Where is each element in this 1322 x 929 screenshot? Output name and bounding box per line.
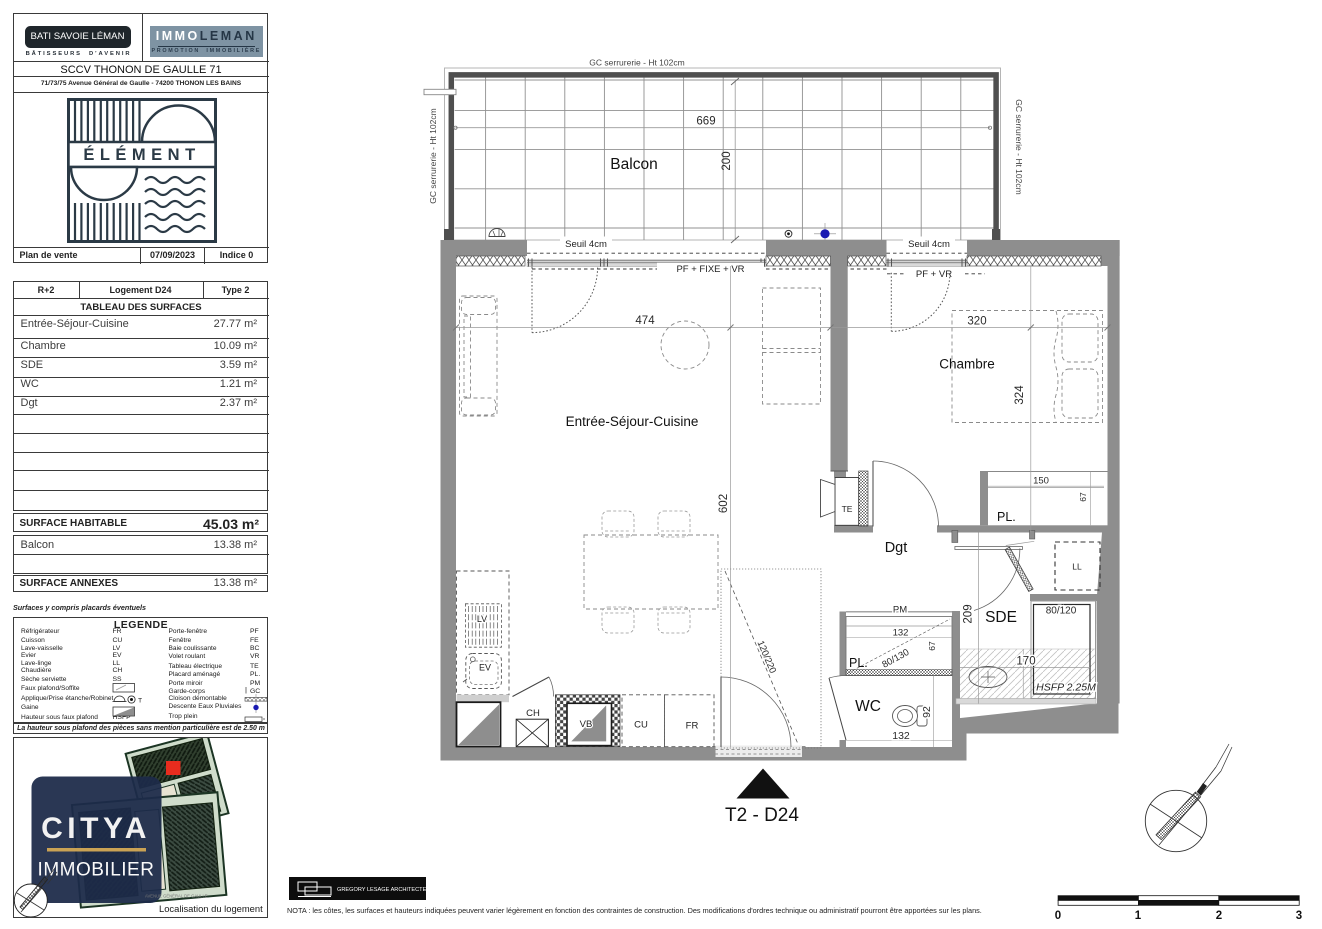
svg-text:PL.: PL. <box>849 656 868 670</box>
svg-text:LL: LL <box>1072 562 1082 572</box>
svg-text:EV: EV <box>479 663 491 673</box>
svg-text:GC serrurerie - Ht 102cm: GC serrurerie - Ht 102cm <box>428 108 438 203</box>
svg-text:3: 3 <box>1296 910 1302 922</box>
svg-text:132: 132 <box>893 628 909 639</box>
svg-text:209: 209 <box>963 604 975 623</box>
svg-text:120/220: 120/220 <box>755 639 779 675</box>
svg-text:AVENUE GÉNÉRAL DE GAULLE: AVENUE GÉNÉRAL DE GAULLE <box>145 894 208 899</box>
svg-text:PF + FIXE + VR: PF + FIXE + VR <box>676 264 744 275</box>
svg-text:1: 1 <box>1135 910 1142 922</box>
svg-text:170: 170 <box>1016 656 1035 668</box>
svg-text:320: 320 <box>967 316 986 328</box>
svg-text:200: 200 <box>721 151 733 170</box>
svg-text:CITYA: CITYA <box>41 812 151 845</box>
svg-text:GC serrurerie - Ht 102cm: GC serrurerie - Ht 102cm <box>589 58 684 68</box>
svg-text:132: 132 <box>892 730 910 742</box>
svg-text:T: T <box>138 697 142 704</box>
svg-text:67: 67 <box>927 641 937 651</box>
svg-text:GREGORY LESAGE ARCHITECTE: GREGORY LESAGE ARCHITECTE <box>337 887 427 893</box>
svg-text:IMMOBILIER: IMMOBILIER <box>37 860 154 881</box>
svg-text:474: 474 <box>635 315 655 327</box>
svg-text:T2 - D24: T2 - D24 <box>725 805 799 826</box>
svg-text:WC: WC <box>855 698 881 715</box>
svg-text:150: 150 <box>1033 476 1049 487</box>
svg-text:TE: TE <box>842 504 853 514</box>
svg-text:PM: PM <box>893 605 907 616</box>
svg-text:Balcon: Balcon <box>610 156 657 173</box>
svg-text:SDE: SDE <box>985 609 1017 626</box>
svg-text:669: 669 <box>696 116 715 128</box>
svg-text:67: 67 <box>1078 492 1088 502</box>
svg-text:92: 92 <box>921 706 933 718</box>
svg-text:Entrée-Séjour-Cuisine: Entrée-Séjour-Cuisine <box>566 414 699 429</box>
svg-text:324: 324 <box>1014 385 1026 405</box>
svg-text:PF + VR: PF + VR <box>916 269 952 280</box>
svg-text:602: 602 <box>718 494 730 513</box>
svg-text:80/120: 80/120 <box>1046 606 1077 617</box>
svg-text:PL.: PL. <box>997 510 1016 524</box>
svg-text:LV: LV <box>477 614 487 624</box>
svg-text:Seuil 4cm: Seuil 4cm <box>908 239 950 250</box>
svg-text:GC serrurerie - Ht 102cm: GC serrurerie - Ht 102cm <box>1014 99 1024 194</box>
svg-text:CH: CH <box>526 708 540 719</box>
svg-text:CU: CU <box>634 720 648 731</box>
svg-text:Dgt: Dgt <box>885 540 908 556</box>
svg-text:80/130: 80/130 <box>880 647 911 671</box>
svg-text:Localisation du logement: Localisation du logement <box>159 903 263 914</box>
svg-text:0: 0 <box>1055 910 1061 922</box>
svg-text:2: 2 <box>1216 910 1222 922</box>
svg-text:FR: FR <box>686 721 699 732</box>
svg-text:Seuil 4cm: Seuil 4cm <box>565 239 607 250</box>
svg-text:ÉLÉMENT: ÉLÉMENT <box>83 145 200 164</box>
svg-text:HSFP 2.25M: HSFP 2.25M <box>1036 682 1096 694</box>
svg-text:Chambre: Chambre <box>939 357 995 372</box>
svg-text:NOTA : les côtes, les surfaces: NOTA : les côtes, les surfaces et hauteu… <box>287 906 982 915</box>
svg-text:VB: VB <box>580 719 593 730</box>
